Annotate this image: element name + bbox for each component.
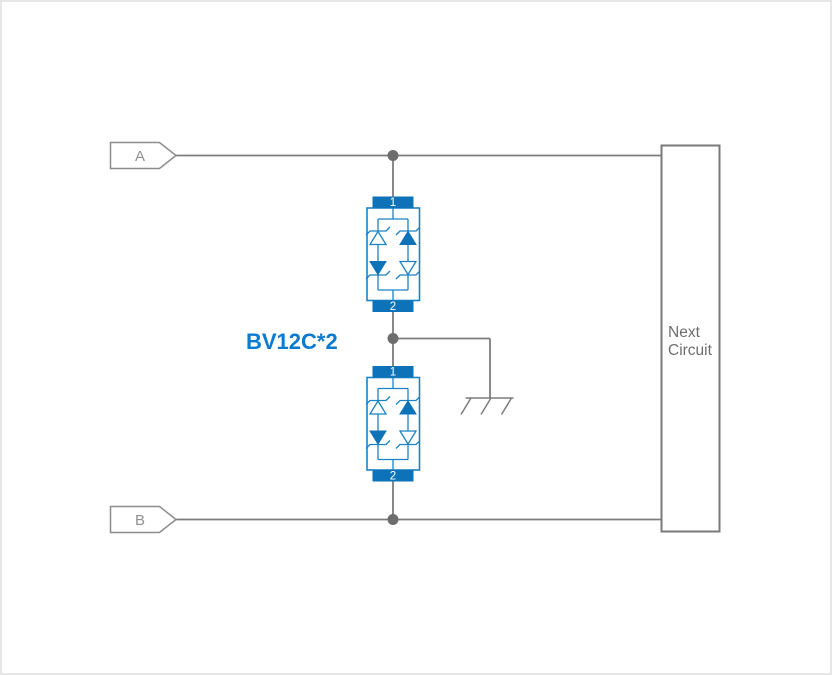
tvs2-pin2-label: 2	[390, 471, 396, 483]
tvs1-pin1-label: 1	[390, 197, 396, 209]
junction-dot-bottom	[388, 514, 399, 525]
part-number-label: BV12C*2	[246, 329, 338, 354]
tvs-device-1	[366, 197, 420, 313]
chassis-ground-icon	[461, 398, 514, 415]
terminal-a-label: A	[135, 148, 145, 165]
next-circuit-block: Next Circuit	[662, 146, 720, 532]
tvs1-pin2-label: 2	[390, 301, 396, 313]
junction-dot-middle	[388, 333, 399, 344]
terminal-b: B	[111, 507, 177, 533]
schematic-canvas: 1 2 1 2 A B BV12C*2 Next Circuit	[0, 0, 832, 675]
junction-dot-top	[388, 150, 399, 161]
next-circuit-label-line1: Next	[668, 324, 701, 341]
next-circuit-label-line2: Circuit	[668, 342, 713, 359]
tvs2-pin1-label: 1	[390, 367, 396, 379]
tvs-device-2	[366, 366, 420, 482]
terminal-a: A	[111, 143, 177, 169]
terminal-b-label: B	[135, 512, 145, 529]
